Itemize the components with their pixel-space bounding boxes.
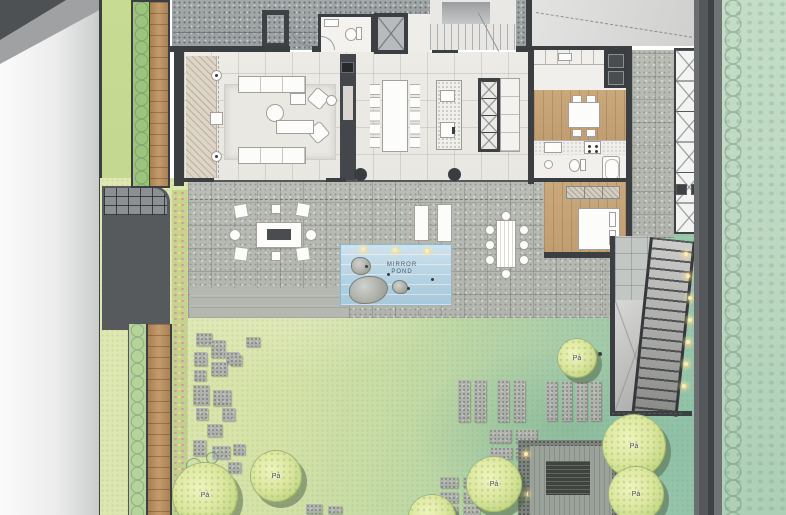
dining-chairs-right xyxy=(410,84,420,150)
mirror-pond: MIRROR POND xyxy=(340,244,452,306)
chair xyxy=(233,203,249,219)
cooktop-knob xyxy=(452,127,455,134)
dining-table xyxy=(382,80,408,152)
wc-sink xyxy=(324,19,339,27)
burner xyxy=(595,145,598,148)
chair xyxy=(485,240,495,250)
planting-deck-strip xyxy=(131,0,170,188)
paver xyxy=(207,424,222,437)
chair xyxy=(485,225,495,235)
hall-floor xyxy=(408,14,430,52)
paver xyxy=(211,340,225,358)
pond-jet xyxy=(407,287,410,290)
kitchen-counter xyxy=(500,78,520,152)
bathtub-inner xyxy=(605,159,619,180)
step-light-line xyxy=(190,295,348,296)
side-stool xyxy=(271,251,281,261)
downlight-dot xyxy=(215,74,218,77)
chair xyxy=(519,240,529,250)
wall xyxy=(168,46,290,52)
paver xyxy=(497,380,509,422)
sun-lounger xyxy=(437,204,452,242)
pond-label: MIRROR POND xyxy=(379,262,425,276)
appliance-wall xyxy=(478,78,500,152)
paver xyxy=(213,390,231,406)
neighbor-wedge xyxy=(532,0,704,46)
pond-light xyxy=(393,248,397,252)
burner xyxy=(588,150,591,153)
paver xyxy=(194,352,207,366)
chair xyxy=(501,211,511,221)
bath-sink xyxy=(544,160,553,169)
fireplace-slot xyxy=(343,86,353,120)
tree-label: Pá xyxy=(272,473,281,480)
paver xyxy=(463,506,480,515)
paver xyxy=(230,355,242,366)
stair-light xyxy=(686,340,690,344)
floor-marker xyxy=(210,112,223,125)
pond-label-line2: POND xyxy=(379,269,425,276)
paver xyxy=(193,385,209,405)
side-paving xyxy=(632,50,674,238)
breakfast-table xyxy=(568,102,600,128)
coffee-table xyxy=(276,120,314,134)
tree-label: Pá xyxy=(573,355,582,362)
burner xyxy=(588,145,591,148)
stair-light xyxy=(684,252,688,256)
paver xyxy=(590,381,601,421)
paver xyxy=(196,333,212,346)
paver xyxy=(222,408,235,421)
shrub-strip xyxy=(133,2,149,186)
deck-table xyxy=(546,461,590,495)
deck-strip-lower xyxy=(146,324,172,515)
sun-lounger xyxy=(414,205,429,241)
paver xyxy=(246,337,260,347)
chair xyxy=(295,246,311,262)
chair xyxy=(572,95,582,103)
chair xyxy=(586,95,596,103)
column xyxy=(448,168,461,181)
outdoor-table-8 xyxy=(496,220,516,268)
pond-rock xyxy=(351,257,371,275)
stair-light xyxy=(686,274,690,278)
driveway-cobbles xyxy=(104,188,167,215)
garden-dot xyxy=(598,352,602,356)
paver xyxy=(328,506,342,514)
paver xyxy=(513,380,525,422)
bath-toilet-tank xyxy=(580,159,586,171)
chair xyxy=(501,269,511,279)
stair-light xyxy=(684,362,688,366)
stair-dashed-line xyxy=(612,413,682,414)
dining-chairs-left xyxy=(370,84,380,150)
pond-light xyxy=(361,247,365,251)
downlight-dot xyxy=(215,155,218,158)
sofa-chaise xyxy=(290,93,306,105)
tree-label: Pá xyxy=(632,491,641,498)
wc-toilet-bowl xyxy=(345,28,357,41)
pond-rock xyxy=(392,280,408,294)
pond-jet xyxy=(431,278,434,281)
chair xyxy=(586,129,596,137)
sofa xyxy=(238,147,306,164)
stair-light xyxy=(688,296,692,300)
pillow xyxy=(609,212,616,227)
stair-treads xyxy=(430,24,516,50)
burner xyxy=(595,150,598,153)
paver xyxy=(306,504,322,514)
fireplace-box xyxy=(341,62,354,73)
tree-label: Pá xyxy=(201,492,210,499)
chair xyxy=(233,246,249,262)
stair-light xyxy=(682,384,686,388)
paver xyxy=(546,381,557,421)
chair xyxy=(519,225,529,235)
tall-appliance-unit xyxy=(604,50,626,88)
paver xyxy=(561,381,572,421)
paver xyxy=(489,429,511,443)
paver xyxy=(228,462,241,473)
bath-toilet-bowl xyxy=(569,159,580,172)
deck-light xyxy=(524,452,528,456)
paver xyxy=(211,362,227,376)
pond-jet xyxy=(365,265,368,268)
pond-jet xyxy=(387,273,390,276)
entry-court xyxy=(172,0,318,50)
tree-label: Pá xyxy=(630,443,639,450)
island-sink xyxy=(440,90,455,102)
paver xyxy=(440,477,458,488)
tree: Pá xyxy=(466,456,522,512)
pond-light xyxy=(425,249,429,253)
stove xyxy=(584,141,601,154)
entry-court-strip xyxy=(318,0,434,14)
glass-facade-line xyxy=(184,180,528,182)
pond-rock xyxy=(349,276,388,304)
chair xyxy=(229,229,241,241)
paver xyxy=(196,408,208,420)
chair xyxy=(295,202,311,218)
wall xyxy=(528,44,534,184)
chair xyxy=(572,129,582,137)
paver xyxy=(193,440,206,456)
tree: Pá xyxy=(557,338,597,378)
tree-label: Pá xyxy=(490,481,499,488)
kitchenette-sink xyxy=(558,53,572,61)
step-light-line xyxy=(190,305,348,306)
counter-sink xyxy=(544,142,562,153)
fire-insert xyxy=(267,229,291,240)
hedge-strip-lower xyxy=(128,324,147,515)
pond-label-line1: MIRROR xyxy=(379,262,425,269)
hedge-shrub-row xyxy=(720,0,746,515)
appliance-front xyxy=(608,71,624,85)
side-stool xyxy=(271,204,281,214)
deck-light xyxy=(524,492,528,496)
site-plan: MIRROR POND xyxy=(0,0,786,515)
paver xyxy=(458,380,470,422)
paver xyxy=(194,370,206,381)
stairwell-wall xyxy=(610,236,615,416)
west-facade-wall xyxy=(174,46,184,186)
facade-mullion xyxy=(326,178,346,182)
entry-planter xyxy=(262,10,289,48)
wardrobe xyxy=(566,186,620,199)
terrace-steps xyxy=(190,288,348,318)
tree: Pá xyxy=(608,466,664,515)
column xyxy=(354,168,367,181)
planter-box xyxy=(676,184,687,195)
deck-strip-upper xyxy=(149,2,168,186)
facade-mullion xyxy=(184,178,214,182)
floor-lamp xyxy=(326,95,337,106)
elevator xyxy=(374,13,408,54)
tree: Pá xyxy=(250,450,302,502)
sofa xyxy=(238,76,306,93)
chair xyxy=(305,229,317,241)
paver xyxy=(576,381,587,421)
road xyxy=(0,0,102,515)
stair-light xyxy=(688,318,692,322)
chair xyxy=(485,255,495,265)
appliance-front xyxy=(608,54,624,68)
paver xyxy=(233,444,245,455)
chair xyxy=(519,255,529,265)
paver xyxy=(474,380,486,422)
